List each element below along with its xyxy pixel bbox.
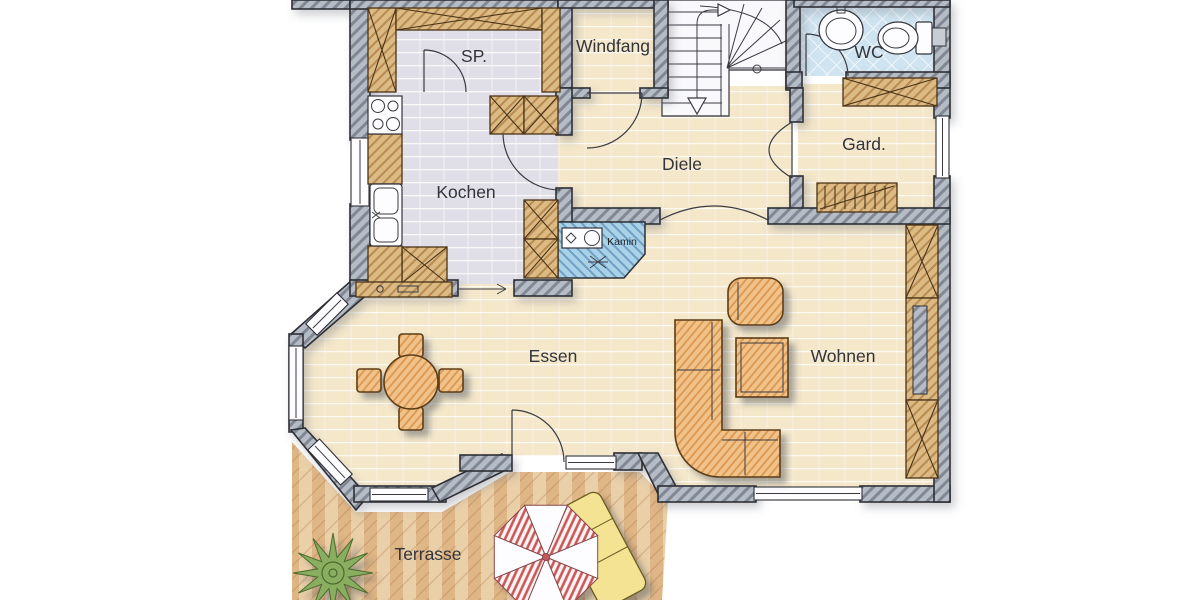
wall-segment [658,486,756,502]
wall-segment [514,280,572,296]
window [936,116,949,178]
window [370,488,428,501]
room-label-essen: Essen [529,346,578,366]
floor-plan-page: SP. Windfang WC Kochen Diele Gard. Kamin… [0,0,1200,600]
wall-segment [292,0,352,9]
room-label-gard: Gard. [842,134,886,154]
room-label-kamin: Kamin [607,236,637,248]
wall-segment [790,88,803,122]
room-label-terrasse: Terrasse [394,544,461,564]
coffee-table [736,338,788,397]
room-label-diele: Diele [662,154,702,174]
stove-icon [368,96,402,134]
wall-segment [786,72,802,88]
room-label-wc: WC [854,42,883,62]
wall-segment [640,88,668,98]
room-label-windfang: Windfang [576,36,650,56]
fireplace [558,222,645,278]
window [351,138,369,206]
kitchen-sink-icon [370,184,402,246]
wall-units [906,225,938,478]
armchair [728,278,783,325]
wall-segment [460,455,512,471]
parasol-icon [494,505,597,600]
floor-plan-svg: SP. Windfang WC Kochen Diele Gard. Kamin… [0,0,1200,600]
window [289,346,303,420]
room-label-wohnen: Wohnen [811,346,876,366]
wall-segment [794,0,950,7]
fireplace-stove-icon [562,228,602,248]
tv-icon [913,306,927,394]
wall-segment [350,0,370,140]
wall-segment [350,204,370,290]
wall-segment [654,0,668,96]
window [754,487,862,500]
window [566,456,616,469]
room-label-sp: SP. [461,46,487,66]
wall-segment [558,0,668,8]
wall-segment [614,453,642,470]
room-label-kochen: Kochen [436,182,495,202]
